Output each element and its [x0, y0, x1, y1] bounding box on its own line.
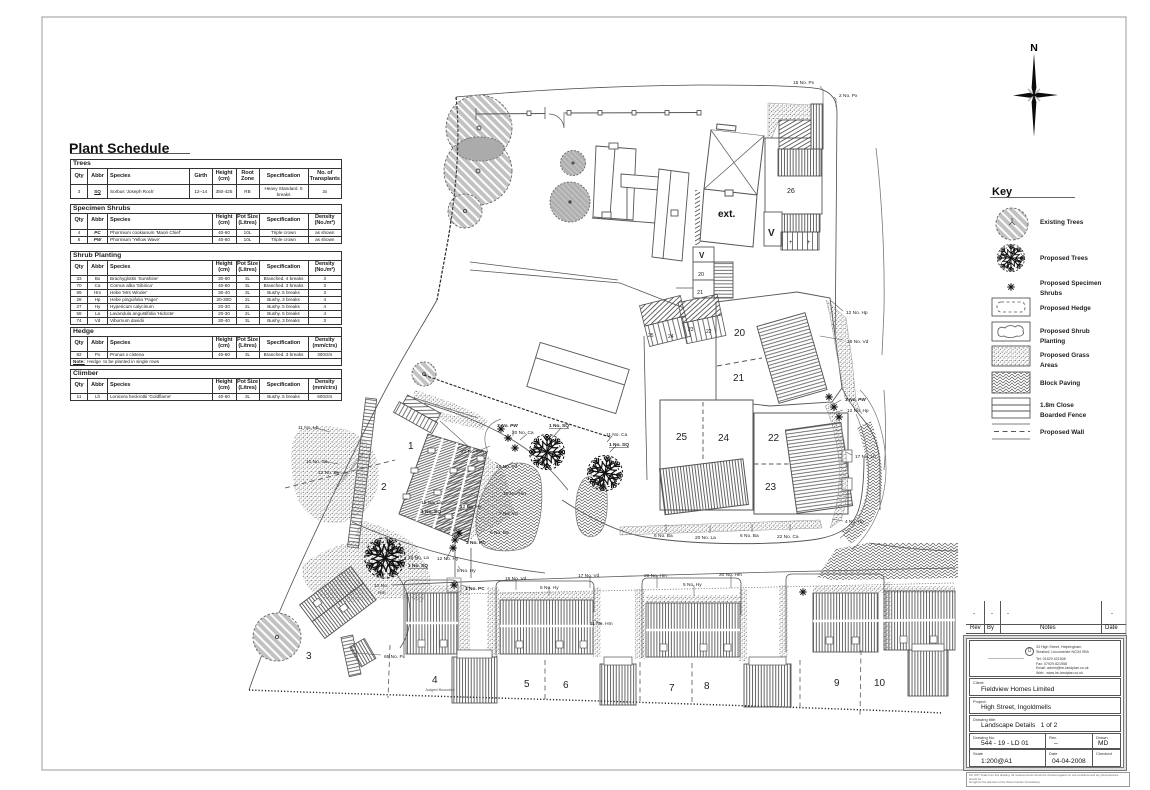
svg-text:10 No.: 10 No.	[374, 583, 388, 589]
svg-text:1 No. SQ: 1 No. SQ	[421, 509, 441, 515]
svg-text:17 No. Vd: 17 No. Vd	[578, 573, 600, 579]
svg-text:3 No. PW: 3 No. PW	[497, 423, 518, 429]
svg-text:3 No. PW: 3 No. PW	[845, 397, 866, 403]
svg-text:20 No. Ca: 20 No. Ca	[512, 430, 534, 436]
svg-text:15 No. La: 15 No. La	[421, 500, 442, 506]
svg-text:25: 25	[648, 333, 654, 339]
svg-text:12 No. Hp: 12 No. Hp	[847, 408, 869, 414]
svg-text:15 No. Px: 15 No. Px	[793, 80, 815, 86]
svg-text:21: 21	[697, 290, 703, 296]
svg-text:V: V	[699, 251, 705, 260]
svg-text:7: 7	[669, 683, 675, 694]
svg-text:Judged Boundary: Judged Boundary	[424, 688, 456, 692]
svg-text:23: 23	[765, 482, 777, 493]
svg-text:24: 24	[668, 334, 674, 340]
svg-text:17 No. Lh: 17 No. Lh	[855, 454, 876, 460]
svg-text:10 No. Ca: 10 No. Ca	[306, 459, 328, 465]
svg-text:+: +	[789, 240, 793, 246]
svg-text:21: 21	[733, 373, 745, 384]
svg-text:2: 2	[381, 482, 387, 493]
svg-text:1 No. SQ: 1 No. SQ	[549, 423, 569, 429]
svg-text:9: 9	[834, 678, 840, 689]
svg-text:1 No. SQ: 1 No. SQ	[609, 442, 629, 448]
svg-text:20: 20	[734, 328, 746, 339]
svg-text:12 No. Bx: 12 No. Bx	[318, 470, 340, 476]
svg-text:22 No. Ca: 22 No. Ca	[777, 534, 799, 540]
svg-text:1 No. PC: 1 No. PC	[465, 586, 485, 592]
svg-text:7 No. Vd: 7 No. Vd	[499, 511, 518, 517]
svg-text:10: 10	[874, 678, 886, 689]
svg-text:24: 24	[718, 433, 730, 444]
svg-text:1 No. SQ: 1 No. SQ	[408, 563, 428, 569]
svg-text:12 No. Hy: 12 No. Hy	[460, 504, 482, 510]
svg-text:15 No. La: 15 No. La	[408, 555, 429, 561]
svg-text:10 No. Hm: 10 No. Hm	[503, 491, 526, 497]
svg-text:18 No. Vd: 18 No. Vd	[847, 339, 869, 345]
svg-text:3 No. PC: 3 No. PC	[466, 540, 486, 546]
svg-text:15 No. Vd: 15 No. Vd	[505, 576, 527, 582]
svg-text:ext.: ext.	[718, 209, 735, 220]
svg-text:22 No. Hm: 22 No. Hm	[461, 449, 484, 455]
svg-text:2 No. Px: 2 No. Px	[839, 93, 858, 99]
svg-text:22: 22	[768, 433, 780, 444]
svg-text:11 No. Lh: 11 No. Lh	[298, 425, 319, 431]
svg-text:11 No. Hm: 11 No. Hm	[590, 621, 613, 627]
svg-text:4 No. Hp: 4 No. Hp	[845, 519, 864, 525]
svg-text:5 No. Hy: 5 No. Hy	[457, 568, 476, 574]
svg-text:6 No. Ba: 6 No. Ba	[490, 530, 509, 536]
svg-text:6: 6	[563, 680, 569, 691]
svg-text:12 No. Hy: 12 No. Hy	[437, 556, 459, 562]
svg-text:8: 8	[704, 681, 710, 692]
svg-text:Hm: Hm	[378, 590, 385, 596]
svg-text:22: 22	[706, 329, 712, 335]
svg-text:3: 3	[306, 651, 312, 662]
svg-text:11 No. Ca: 11 No. Ca	[606, 432, 628, 438]
svg-text:+: +	[807, 240, 811, 246]
svg-text:20 No. Hm: 20 No. Hm	[719, 572, 742, 578]
svg-text:4: 4	[432, 675, 438, 686]
svg-text:V: V	[768, 228, 775, 239]
svg-text:6 No. Ba: 6 No. Ba	[654, 533, 673, 539]
svg-text:20 No. Hm: 20 No. Hm	[644, 573, 667, 579]
svg-text:12 No. Hp: 12 No. Hp	[846, 310, 868, 316]
svg-text:18 No. Vd: 18 No. Vd	[496, 464, 518, 470]
svg-text:23: 23	[688, 327, 694, 333]
svg-text:6 No. Ba: 6 No. Ba	[740, 533, 759, 539]
svg-text:20: 20	[698, 272, 704, 278]
svg-text:65 No. Px: 65 No. Px	[384, 654, 406, 660]
svg-text:26: 26	[787, 188, 795, 195]
svg-text:5: 5	[524, 679, 530, 690]
svg-text:N: N	[1030, 42, 1038, 54]
svg-text:1: 1	[408, 441, 414, 452]
svg-text:5 No. Hy: 5 No. Hy	[683, 582, 702, 588]
svg-text:20 No. La: 20 No. La	[695, 535, 716, 541]
svg-text:25: 25	[676, 432, 688, 443]
svg-text:5 No. Hy: 5 No. Hy	[540, 585, 559, 591]
